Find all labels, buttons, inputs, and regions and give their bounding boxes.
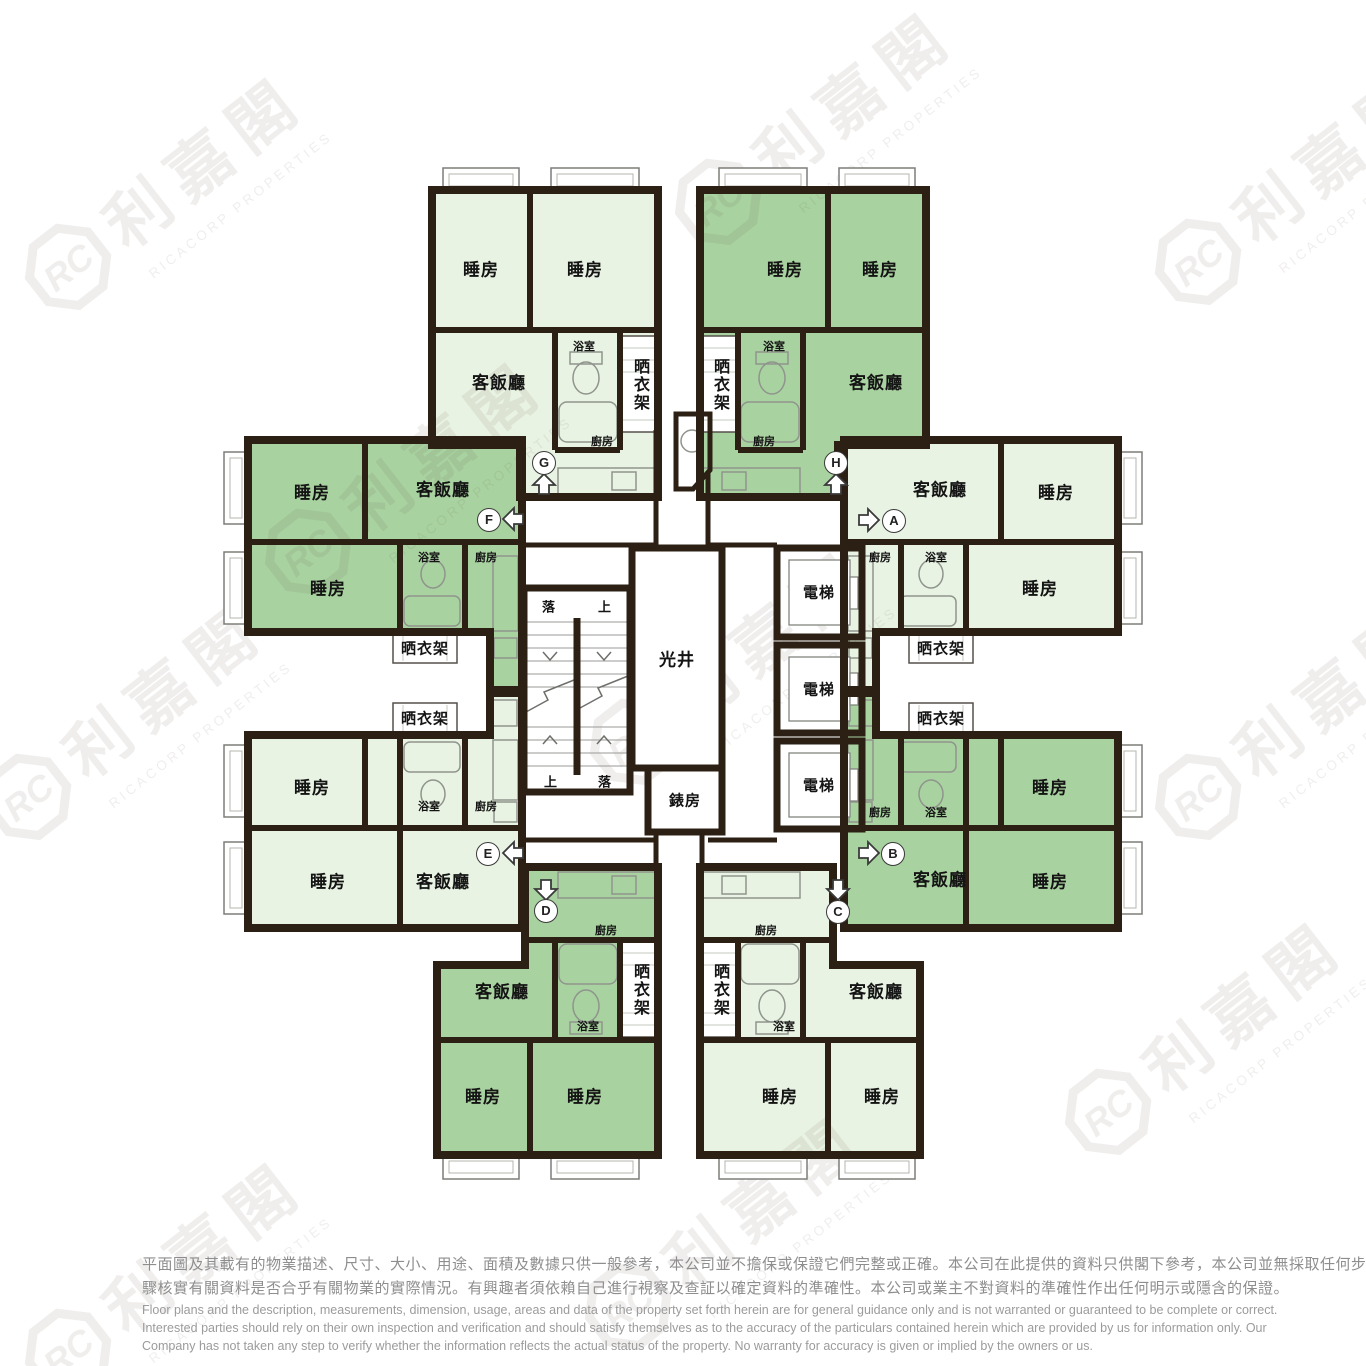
unit-c-kitchen-label: 廚房	[755, 922, 777, 938]
unit-e-living-label: 客飯廳	[416, 868, 470, 893]
disclaimer-cn-line-1: 平面圖及其載有的物業描述、尺寸、大小、用途、面積及數據只供一般參考，本公司並不擔…	[142, 1253, 1252, 1274]
disclaimer-cn-line-2: 驟核實有關資料是否合乎有關物業的實際情況。有興趣者須依賴自己進行視察及查証以確定…	[142, 1277, 1252, 1298]
unit-g-bedroom-1-label: 睡房	[463, 256, 499, 281]
unit-badge-e: E	[476, 842, 500, 866]
drying-rack-label-left-2: 晒衣架	[401, 708, 449, 729]
unit-badge-b: B	[881, 842, 905, 866]
unit-b-kitchen-label: 廚房	[869, 804, 891, 820]
unit-f-kitchen-label: 廚房	[475, 549, 497, 565]
unit-b-living-label: 客飯廳	[913, 866, 967, 891]
disclaimer-en-line-2: Interested parties should rely on their …	[142, 1321, 1252, 1335]
unit-e-bedroom-2-label: 睡房	[310, 868, 346, 893]
drying-rack-label-bottom-left: 晒衣架	[627, 963, 651, 1017]
drying-rack-label-top-left: 晒衣架	[627, 358, 651, 412]
walls	[248, 190, 1118, 1155]
drying-rack-label-top-right: 晒衣架	[707, 358, 731, 412]
stair-up-label-bottom: 上	[544, 772, 558, 791]
lift-3-label: 電梯	[803, 775, 835, 796]
unit-e-bedroom-1-label: 睡房	[294, 774, 330, 799]
drying-rack-label-left-1: 晒衣架	[401, 638, 449, 659]
unit-d-bathroom-label: 浴室	[577, 1018, 599, 1034]
unit-h-kitchen-label: 廚房	[753, 433, 775, 449]
drying-rack-label-right-2: 晒衣架	[917, 708, 965, 729]
unit-f-living-label: 客飯廳	[416, 476, 470, 501]
unit-f-bathroom-label: 浴室	[418, 549, 440, 565]
unit-g-bathroom-label: 浴室	[573, 338, 595, 354]
unit-g-bedroom-2-label: 睡房	[567, 256, 603, 281]
unit-a-bathroom-label: 浴室	[925, 549, 947, 565]
unit-a-area	[844, 440, 1118, 690]
unit-g-living-label: 客飯廳	[472, 369, 526, 394]
unit-c-bathroom-label: 浴室	[773, 1018, 795, 1034]
unit-h-bedroom-1-label: 睡房	[767, 256, 803, 281]
stair-down-label-bottom: 落	[598, 772, 612, 791]
stair-up-label-top: 上	[598, 597, 612, 616]
unit-a-kitchen-label: 廚房	[869, 549, 891, 565]
light-well-label: 光井	[659, 646, 695, 671]
unit-h-bathroom-label: 浴室	[763, 338, 785, 354]
lift-2-label: 電梯	[803, 679, 835, 700]
floor-plan-svg: RC 利嘉閣 RICACORP PROPERTIES	[0, 0, 1366, 1366]
unit-c-bedroom-1-label: 睡房	[762, 1083, 798, 1108]
unit-d-living-label: 客飯廳	[475, 978, 529, 1003]
drying-rack-label-bottom-right: 晒衣架	[707, 963, 731, 1017]
unit-a-bedroom-2-label: 睡房	[1022, 575, 1058, 600]
floor-plan-page: RC 利嘉閣 RICACORP PROPERTIES	[0, 0, 1366, 1366]
unit-e-kitchen-label: 廚房	[475, 798, 497, 814]
unit-badge-d: D	[534, 899, 558, 923]
drying-rack-label-right-1: 晒衣架	[917, 638, 965, 659]
unit-badge-h: H	[824, 451, 848, 475]
unit-c-bedroom-2-label: 睡房	[864, 1083, 900, 1108]
unit-e-bathroom-label: 浴室	[418, 798, 440, 814]
unit-badge-c: C	[826, 900, 850, 924]
unit-a-bedroom-1-label: 睡房	[1038, 479, 1074, 504]
unit-d-kitchen-label: 廚房	[595, 922, 617, 938]
unit-c-living-label: 客飯廳	[849, 978, 903, 1003]
meter-room-label: 錶房	[669, 790, 701, 811]
unit-badge-a: A	[882, 509, 906, 533]
unit-h-bedroom-2-label: 睡房	[862, 256, 898, 281]
unit-d-bedroom-2-label: 睡房	[567, 1083, 603, 1108]
stair-down-label-top: 落	[542, 597, 556, 616]
unit-b-bathroom-label: 浴室	[925, 804, 947, 820]
unit-h-living-label: 客飯廳	[849, 369, 903, 394]
unit-badge-f: F	[477, 508, 501, 532]
unit-a-living-label: 客飯廳	[913, 476, 967, 501]
lift-1-label: 電梯	[803, 582, 835, 603]
disclaimer-en-line-1: Floor plans and the description, measure…	[142, 1303, 1252, 1317]
unit-b-bedroom-1-label: 睡房	[1032, 774, 1068, 799]
unit-f-bedroom-1-label: 睡房	[294, 479, 330, 504]
unit-g-kitchen-label: 廚房	[591, 433, 613, 449]
unit-d-bedroom-1-label: 睡房	[465, 1083, 501, 1108]
unit-b-bedroom-2-label: 睡房	[1032, 868, 1068, 893]
unit-f-bedroom-2-label: 睡房	[310, 575, 346, 600]
unit-badge-g: G	[532, 451, 556, 475]
disclaimer-en-line-3: Company has not taken any step to verify…	[142, 1339, 1252, 1353]
